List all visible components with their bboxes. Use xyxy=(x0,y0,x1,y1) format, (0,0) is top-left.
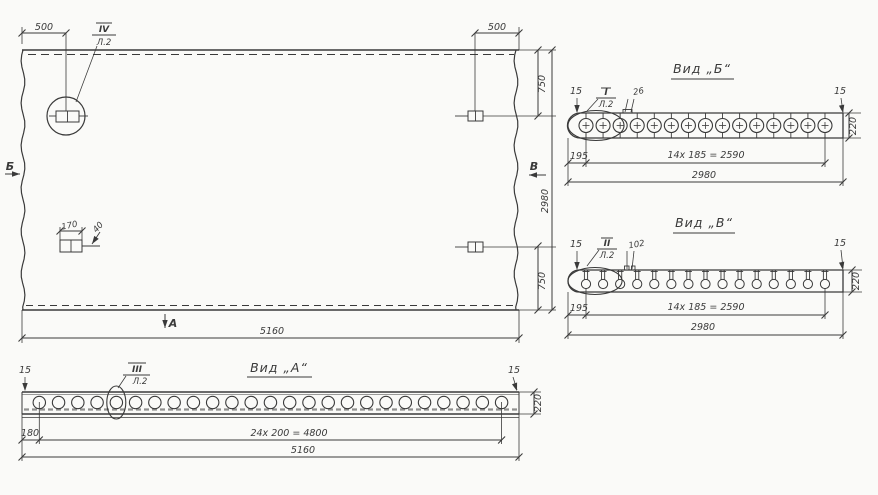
hole xyxy=(361,396,373,408)
anchor-loop xyxy=(820,279,829,288)
technical-drawing: 500 500 IV Л.2 Б В А 750 2980 750 5160 1… xyxy=(0,0,878,495)
anchor-loop xyxy=(667,279,676,288)
detail-callout-ellipse xyxy=(568,268,622,295)
dim-15-v-right: 15 xyxy=(834,238,846,249)
callout-iv-number: IV xyxy=(99,25,110,35)
anchor-loop xyxy=(633,279,642,288)
hole xyxy=(91,396,103,408)
dim-2980-b: 2980 xyxy=(692,170,716,181)
anchor-loop xyxy=(650,279,659,288)
hole xyxy=(168,396,180,408)
hole xyxy=(149,396,161,408)
rough-edge xyxy=(21,50,25,310)
dim-15-a-left: 15 xyxy=(19,365,31,376)
hole xyxy=(129,396,141,408)
view-a-title: Вид „А“ xyxy=(250,360,308,375)
callout-i-number: I xyxy=(604,88,608,98)
view-v: Вид „В“ II Л.2 15 15 102 220 195 14х 185… xyxy=(565,215,863,339)
dim-2590-v: 14х 185 = 2590 xyxy=(667,302,744,313)
rough-edge xyxy=(514,50,518,310)
anchor-loop xyxy=(769,279,778,288)
anchor-loop xyxy=(684,279,693,288)
hole xyxy=(399,396,411,408)
hole xyxy=(245,396,257,408)
hole xyxy=(284,396,296,408)
hole xyxy=(457,396,469,408)
anchor-loop xyxy=(803,279,812,288)
dim-220-v: 220 xyxy=(851,272,862,290)
anchor-loop xyxy=(752,279,761,288)
drawing-sheet: 500 500 IV Л.2 Б В А 750 2980 750 5160 1… xyxy=(0,0,878,495)
dim-750-bottom: 750 xyxy=(537,272,548,290)
dim-180-a: 180 xyxy=(21,428,39,439)
hole xyxy=(322,396,334,408)
callout-iii-number: III xyxy=(132,365,143,375)
anchor-loop xyxy=(598,279,607,288)
hole xyxy=(110,396,122,408)
arrowhead xyxy=(574,262,579,270)
anchor-loop xyxy=(581,279,590,288)
dim-4800-a: 24х 200 = 4800 xyxy=(250,428,327,439)
arrowhead xyxy=(162,320,167,328)
dim-26-b: 26 xyxy=(632,86,645,98)
hole xyxy=(52,396,64,408)
hole xyxy=(418,396,430,408)
plan-geometry xyxy=(5,23,556,343)
dim-750-top: 750 xyxy=(537,75,548,93)
hole xyxy=(303,396,315,408)
view-v-title: Вид „В“ xyxy=(675,215,733,230)
callout-iii-sheet: Л.2 xyxy=(132,377,148,387)
callout-ii-number: II xyxy=(604,239,611,249)
dim-15-v-left: 15 xyxy=(570,239,582,250)
dim-5160-plan: 5160 xyxy=(260,326,284,337)
anchor-loop xyxy=(786,279,795,288)
hole xyxy=(380,396,392,408)
hole xyxy=(476,396,488,408)
hole xyxy=(206,396,218,408)
view-b-line xyxy=(625,99,628,112)
dim-2590-b: 14х 185 = 2590 xyxy=(667,150,744,161)
dim-15-a-right: 15 xyxy=(508,365,520,376)
dim-195-b: 195 xyxy=(570,151,588,162)
hole xyxy=(438,396,450,408)
arrowhead xyxy=(22,383,27,391)
dim-500-right: 500 xyxy=(488,22,506,33)
section-marker-b: Б xyxy=(6,160,14,173)
arrowhead xyxy=(574,105,579,113)
dim-5160-a: 5160 xyxy=(291,445,315,456)
arrowhead xyxy=(839,105,846,114)
dim-15-b-right: 15 xyxy=(834,86,846,97)
dim-195-v: 195 xyxy=(570,303,588,314)
view-a-geometry xyxy=(19,363,542,461)
callout-ii-sheet: Л.2 xyxy=(599,251,615,261)
section-marker-v: В xyxy=(530,160,538,173)
dim-15-b-left: 15 xyxy=(570,86,582,97)
arrowhead xyxy=(90,236,99,246)
hole xyxy=(226,396,238,408)
anchor-loop xyxy=(718,279,727,288)
section-marker-a: А xyxy=(168,317,178,330)
view-v-line xyxy=(587,250,599,266)
arrowhead xyxy=(529,172,537,177)
callout-i-sheet: Л.2 xyxy=(598,100,614,110)
anchor-loop xyxy=(616,279,625,288)
hole xyxy=(341,396,353,408)
view-b-title: Вид „Б“ xyxy=(673,61,731,76)
view-b: Вид „Б“ I Л.2 15 15 26 220 195 14х 185 =… xyxy=(565,61,862,186)
hole xyxy=(72,396,84,408)
callout-iv-sheet: Л.2 xyxy=(96,38,112,48)
plan-view: 500 500 IV Л.2 Б В А 750 2980 750 5160 1… xyxy=(5,22,556,343)
dim-102-v: 102 xyxy=(628,239,646,252)
dim-2980-v: 2980 xyxy=(691,322,715,333)
view-b-line xyxy=(631,99,634,112)
view-b-line xyxy=(587,99,598,111)
arrowhead xyxy=(839,262,846,271)
hole xyxy=(264,396,276,408)
view-a: Вид „А“ III Л.2 15 15 220 180 24х 200 = … xyxy=(19,360,545,461)
anchor-loop xyxy=(701,279,710,288)
hole xyxy=(187,396,199,408)
dim-40-detail: 40 xyxy=(91,220,106,235)
anchor-loop xyxy=(735,279,744,288)
dim-220-b: 220 xyxy=(848,117,859,135)
dim-500-left: 500 xyxy=(35,22,53,33)
dim-2980-right: 2980 xyxy=(540,189,551,213)
arrowhead xyxy=(512,383,520,392)
dim-220-a: 220 xyxy=(533,394,544,412)
